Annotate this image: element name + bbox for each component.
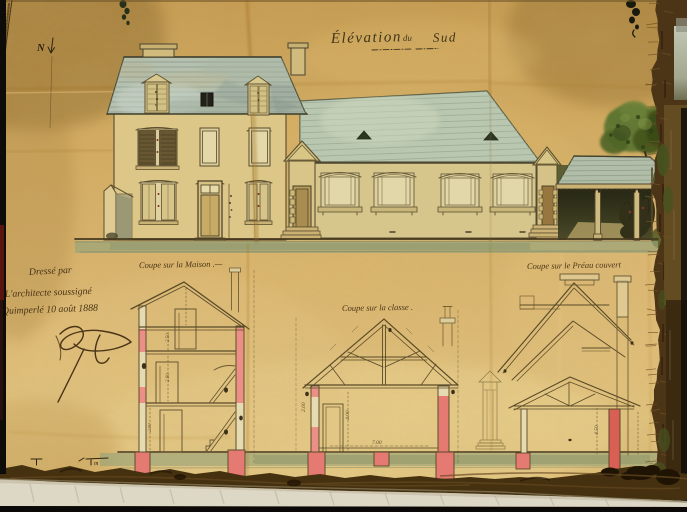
svg-text:Dressé par: Dressé par	[28, 265, 73, 278]
svg-text:N: N	[36, 43, 45, 54]
svg-text:7.00: 7.00	[372, 440, 382, 446]
svg-text:4.50: 4.50	[593, 425, 600, 435]
svg-text:2.80: 2.80	[148, 423, 153, 432]
svg-text:2.60: 2.60	[301, 402, 307, 412]
svg-text:m: m	[94, 461, 99, 467]
svg-text:Coupe sur la classe .: Coupe sur la classe .	[342, 302, 413, 313]
svg-text:du: du	[403, 33, 413, 43]
svg-text:Sud: Sud	[433, 29, 457, 45]
svg-text:2.80: 2.80	[166, 373, 171, 382]
svg-text:4.00: 4.00	[344, 410, 351, 420]
svg-text:2.50: 2.50	[166, 333, 171, 342]
svg-text:Coupe sur le Préau couvert: Coupe sur le Préau couvert	[527, 259, 622, 271]
svg-text:Coupe sur la Maison .—: Coupe sur la Maison .—	[139, 259, 223, 270]
svg-text:Élévation: Élévation	[330, 28, 402, 47]
